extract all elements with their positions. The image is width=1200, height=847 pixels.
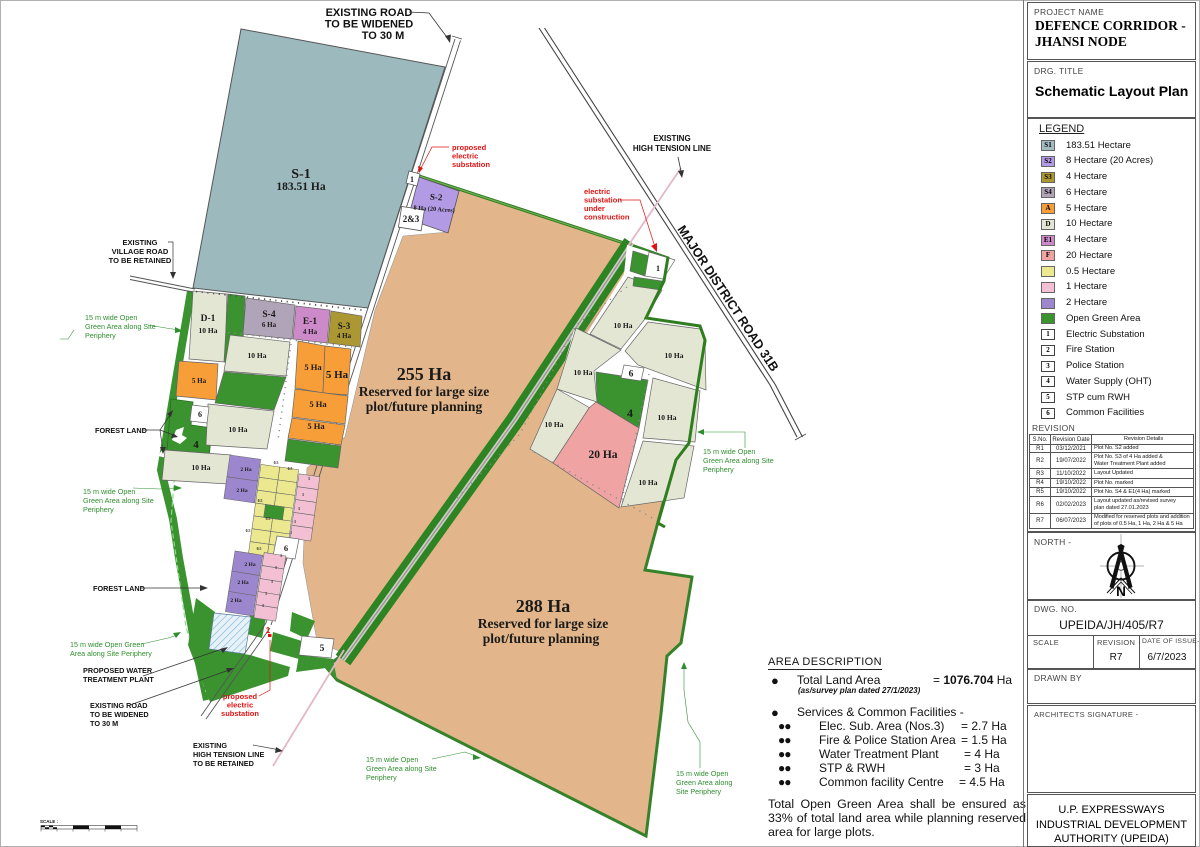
svg-text:TO 30 M: TO 30 M xyxy=(90,719,118,728)
svg-text:FOREST LAND: FOREST LAND xyxy=(93,584,145,593)
svg-text:10 Ha: 10 Ha xyxy=(614,321,633,330)
svg-text:15 m wide Open: 15 m wide Open xyxy=(703,447,755,456)
svg-text:2 Ha: 2 Ha xyxy=(237,580,248,586)
svg-text:1: 1 xyxy=(280,553,282,558)
svg-text:1: 1 xyxy=(656,264,660,273)
svg-text:1: 1 xyxy=(294,519,296,524)
svg-text:10 Ha: 10 Ha xyxy=(248,351,267,360)
svg-text:20 Ha: 20 Ha xyxy=(588,449,617,461)
svg-text:6 Ha: 6 Ha xyxy=(262,321,277,329)
svg-text:Periphery: Periphery xyxy=(703,465,734,474)
svg-text:1: 1 xyxy=(275,565,277,570)
svg-text:10 Ha: 10 Ha xyxy=(658,413,677,422)
svg-text:S-2: S-2 xyxy=(430,192,444,203)
svg-text:1: 1 xyxy=(266,626,271,635)
svg-text:2&3: 2&3 xyxy=(403,214,420,224)
svg-text:10 Ha: 10 Ha xyxy=(665,351,684,360)
svg-text:Green Area along: Green Area along xyxy=(676,778,732,787)
svg-text:4 Ha: 4 Ha xyxy=(303,328,318,336)
svg-text:1: 1 xyxy=(290,530,292,535)
svg-text:10 Ha: 10 Ha xyxy=(199,326,218,335)
svg-text:10 Ha: 10 Ha xyxy=(574,368,593,377)
svg-text:2 Ha: 2 Ha xyxy=(236,488,247,494)
svg-text:Periphery: Periphery xyxy=(83,505,114,514)
svg-text:Periphery: Periphery xyxy=(366,773,397,782)
svg-text:N: N xyxy=(1116,584,1126,598)
svg-text:288 Ha: 288 Ha xyxy=(516,596,571,616)
svg-text:10 Ha: 10 Ha xyxy=(192,463,211,472)
svg-text:6: 6 xyxy=(284,543,288,553)
svg-text:5 Ha: 5 Ha xyxy=(304,362,322,372)
svg-text:Green Area along Site: Green Area along Site xyxy=(366,764,437,773)
svg-text:Site Periphery: Site Periphery xyxy=(676,787,722,796)
svg-text:15 m wide Open Green: 15 m wide Open Green xyxy=(70,640,144,649)
svg-text:PROPOSED WATER: PROPOSED WATER xyxy=(83,666,153,675)
svg-text:4: 4 xyxy=(193,439,199,451)
svg-text:HIGH TENSION LINE: HIGH TENSION LINE xyxy=(633,144,712,153)
svg-text:S-3: S-3 xyxy=(338,321,351,331)
svg-text:EXISTING ROAD: EXISTING ROAD xyxy=(326,7,413,19)
svg-text:EXISTING ROAD: EXISTING ROAD xyxy=(90,701,148,710)
svg-text:1: 1 xyxy=(298,506,300,511)
svg-text:5: 5 xyxy=(320,644,325,654)
svg-text:1: 1 xyxy=(302,492,304,497)
svg-text:substation: substation xyxy=(221,709,259,718)
svg-text:TO BE WIDENED: TO BE WIDENED xyxy=(90,710,149,719)
svg-text:15 m wide Open: 15 m wide Open xyxy=(85,313,137,322)
svg-text:6: 6 xyxy=(198,410,202,419)
svg-text:D-1: D-1 xyxy=(201,314,216,324)
svg-text:4: 4 xyxy=(627,406,633,420)
svg-text:EXISTING: EXISTING xyxy=(193,741,227,750)
svg-text:Area along Site Periphery: Area along Site Periphery xyxy=(70,649,152,658)
svg-text:TO BE WIDENED: TO BE WIDENED xyxy=(325,19,413,31)
svg-text:2 Ha: 2 Ha xyxy=(240,467,251,473)
svg-text:Periphery: Periphery xyxy=(85,331,116,340)
svg-text:TO BE RETAINED: TO BE RETAINED xyxy=(193,759,254,768)
svg-text:5 Ha: 5 Ha xyxy=(192,377,207,385)
svg-text:5 Ha: 5 Ha xyxy=(309,399,327,409)
svg-text:EXISTING: EXISTING xyxy=(653,134,690,143)
svg-text:2 Ha: 2 Ha xyxy=(244,562,255,568)
svg-text:10 Ha: 10 Ha xyxy=(639,478,658,487)
svg-text:183.51 Ha: 183.51 Ha xyxy=(276,181,325,193)
svg-text:10 Ha: 10 Ha xyxy=(545,420,564,429)
svg-text:Green Area along Site: Green Area along Site xyxy=(703,456,774,465)
svg-text:S-4: S-4 xyxy=(262,310,275,320)
svg-text:1: 1 xyxy=(262,603,264,608)
svg-text:4 Ha: 4 Ha xyxy=(337,332,352,340)
svg-text:FOREST LAND: FOREST LAND xyxy=(95,426,147,435)
svg-text:1: 1 xyxy=(271,579,273,584)
svg-text:1: 1 xyxy=(308,476,310,481)
svg-text:EXISTING: EXISTING xyxy=(122,238,157,247)
svg-text:255 Ha: 255 Ha xyxy=(397,364,452,384)
svg-text:plot/future planning: plot/future planning xyxy=(483,631,600,646)
svg-text:10 Ha: 10 Ha xyxy=(229,425,248,434)
svg-text:TO 30 M: TO 30 M xyxy=(362,30,405,42)
svg-text:0.5: 0.5 xyxy=(246,529,251,533)
svg-text:HIGH TENSION LINE: HIGH TENSION LINE xyxy=(193,750,264,759)
svg-text:15 m wide Open: 15 m wide Open xyxy=(366,755,418,764)
svg-text:15 m wide Open: 15 m wide Open xyxy=(676,769,728,778)
svg-text:Reserved for large size: Reserved for large size xyxy=(478,616,609,631)
svg-text:0.5: 0.5 xyxy=(257,547,262,551)
svg-text:TO BE RETAINED: TO BE RETAINED xyxy=(109,256,172,265)
svg-text:2 Ha: 2 Ha xyxy=(230,598,241,604)
svg-text:E-1: E-1 xyxy=(303,317,318,327)
svg-text:1: 1 xyxy=(410,175,414,184)
svg-text:0.5: 0.5 xyxy=(274,461,279,465)
svg-text:0.5: 0.5 xyxy=(266,517,271,521)
svg-text:5 Ha: 5 Ha xyxy=(326,369,349,381)
svg-text:Green Area along Site: Green Area along Site xyxy=(83,496,154,505)
svg-text:VILLAGE ROAD: VILLAGE ROAD xyxy=(112,247,169,256)
svg-text:6: 6 xyxy=(629,370,634,380)
svg-text:construction: construction xyxy=(584,213,630,222)
svg-text:Reserved for large size: Reserved for large size xyxy=(359,384,490,399)
svg-text:5 Ha: 5 Ha xyxy=(307,421,325,431)
svg-text:1: 1 xyxy=(265,591,267,596)
svg-text:0.5: 0.5 xyxy=(258,499,263,503)
svg-text:TREATMENT PLANT: TREATMENT PLANT xyxy=(83,675,154,684)
svg-text:Green Area along Site: Green Area along Site xyxy=(85,322,156,331)
svg-text:S-1: S-1 xyxy=(291,167,310,182)
svg-text:SCALE :: SCALE : xyxy=(40,819,59,824)
svg-text:substation: substation xyxy=(452,160,490,169)
svg-text:15 m wide Open: 15 m wide Open xyxy=(83,487,135,496)
svg-text:0.5: 0.5 xyxy=(288,467,293,471)
svg-text:plot/future planning: plot/future planning xyxy=(366,399,483,414)
